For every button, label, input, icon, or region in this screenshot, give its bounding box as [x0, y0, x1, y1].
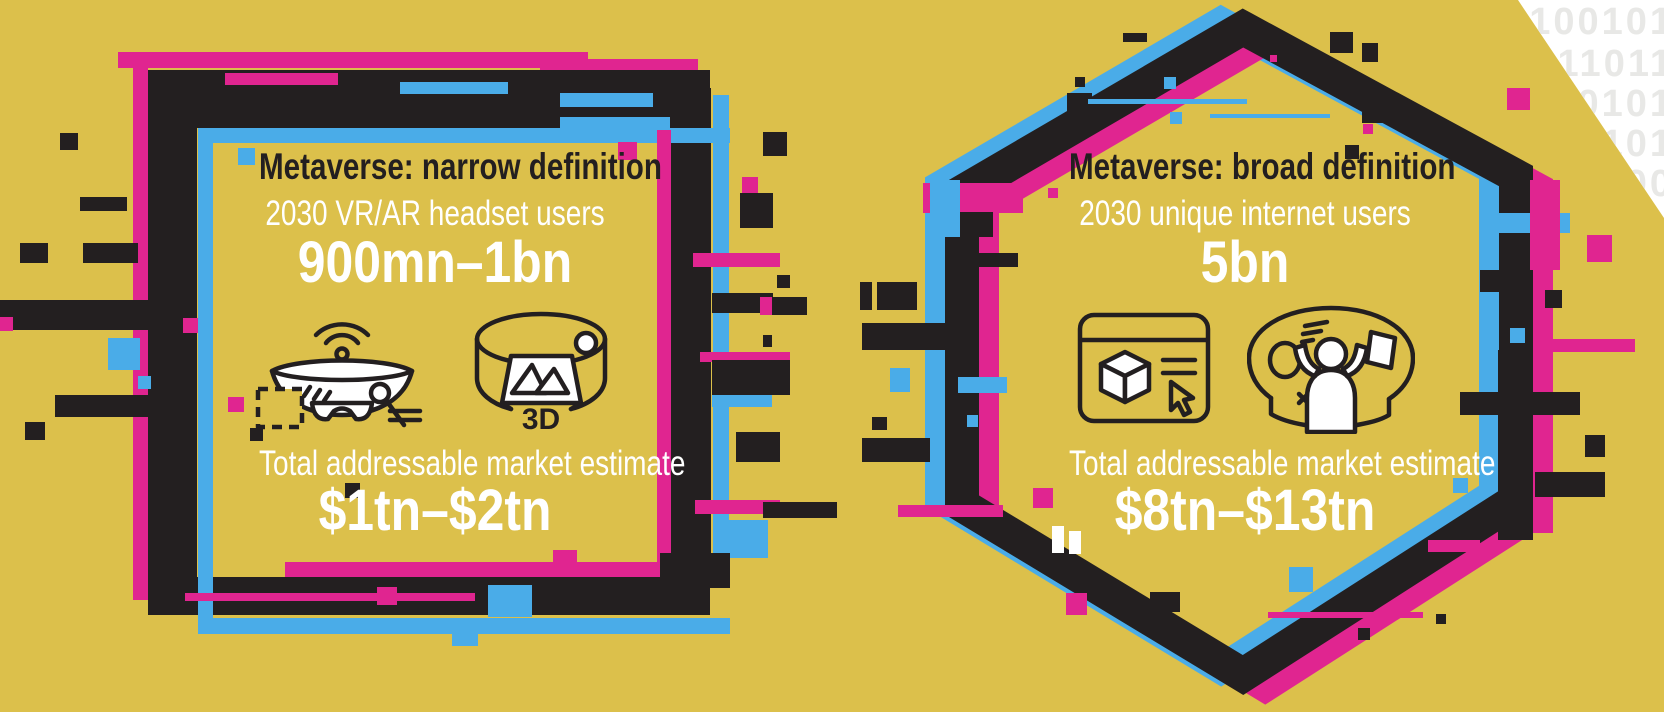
panel-title: Metaverse: narrow definition — [259, 148, 611, 185]
market-label: Total addressable market estimate — [259, 446, 611, 481]
vr-ar-headset-icon — [252, 299, 430, 437]
panel-broad-definition: Metaverse: broad definition 2030 unique … — [1025, 148, 1465, 578]
panel-narrow-definition: Metaverse: narrow definition 2030 VR/AR … — [215, 148, 655, 578]
users-value: 900mn–1bn — [246, 234, 624, 292]
immersive-user-icon — [1247, 302, 1415, 434]
market-value: $1tn–$2tn — [246, 482, 624, 540]
metaverse-infographic: 0100101 111011 00101 101 00 — [0, 0, 1664, 712]
binary-row: 101 — [1602, 123, 1664, 165]
binary-row: 00101 — [1553, 83, 1664, 125]
panel-title: Metaverse: broad definition — [1069, 148, 1421, 185]
binary-row: 111011 — [1535, 43, 1664, 85]
market-value: $8tn–$13tn — [1056, 482, 1434, 540]
browser-3d-object-icon — [1075, 310, 1213, 426]
3d-environment-icon: 3D — [464, 303, 619, 433]
3d-label: 3D — [521, 403, 559, 433]
users-value: 5bn — [1056, 234, 1434, 292]
users-subtitle: 2030 unique internet users — [1069, 196, 1421, 231]
icons-row — [1025, 300, 1465, 436]
binary-row: 00 — [1626, 163, 1664, 205]
icons-row: 3D — [215, 300, 655, 436]
market-label: Total addressable market estimate — [1069, 446, 1421, 481]
users-subtitle: 2030 VR/AR headset users — [259, 196, 611, 231]
binary-row: 0100101 — [1505, 1, 1664, 43]
